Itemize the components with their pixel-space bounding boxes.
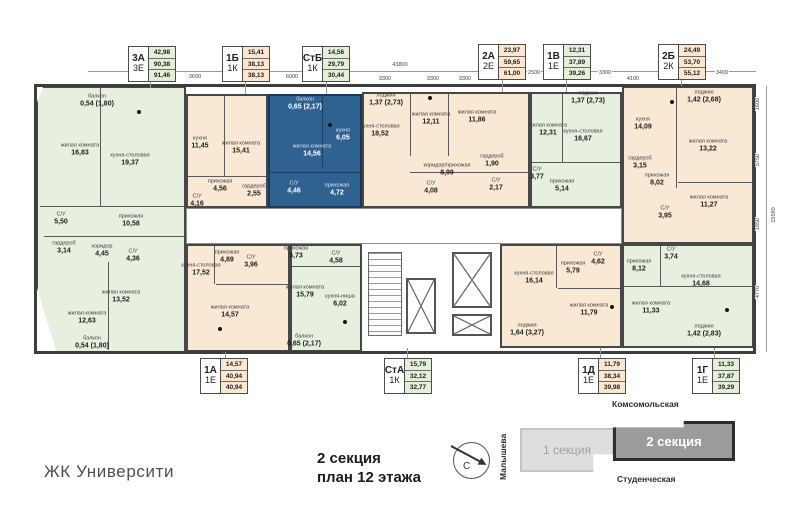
- dimension-segment: 3300: [426, 76, 440, 82]
- room-label: прихожая5,79: [561, 261, 586, 276]
- room-label: балкон0,65 (2,17): [288, 97, 322, 112]
- legend-leader: [407, 348, 408, 358]
- dimension-segment: 3300: [598, 70, 612, 76]
- minimap-section-2[interactable]: 2 секция: [613, 421, 735, 461]
- street-komsomolskaya: Комсомольская: [612, 399, 679, 409]
- legend-3a[interactable]: 3А3Е 42,9890,3891,46: [128, 46, 176, 82]
- plan-caption-floor: план 12 этажа: [317, 469, 421, 488]
- floor-plan-page: балкон0,54 (1,80) жилая комната16,83 кух…: [0, 0, 800, 520]
- room-label: жилая комната16,83: [61, 143, 99, 158]
- room-label: лоджия1,64 (3,27): [510, 323, 544, 338]
- room-label: С/У4,58: [329, 251, 343, 266]
- room-label: гардероб2,55: [242, 184, 265, 199]
- elevator-shaft: [452, 252, 492, 308]
- room-label: С/У5,50: [54, 212, 68, 227]
- apartment-2a[interactable]: [362, 92, 530, 208]
- legend-leader: [681, 80, 682, 86]
- interior-wall: [660, 246, 661, 286]
- legend-leader: [566, 80, 567, 92]
- legend-stb[interactable]: СтБ1К 14,5629,7930,44: [302, 46, 350, 82]
- legend-leader: [502, 80, 503, 92]
- room-label: жилая комната14,56: [293, 144, 331, 159]
- interior-wall: [188, 176, 266, 177]
- interior-wall: [558, 288, 620, 289]
- room-label: лоджия1,42 (2,68): [687, 90, 721, 105]
- legend-2a[interactable]: 2А2Е 23,9759,6561,00: [478, 44, 526, 80]
- room-label: кухня6,05: [336, 128, 350, 143]
- entry-dot: [428, 96, 432, 100]
- street-studencheskaya: Студенческая: [617, 474, 676, 484]
- room-label: кухня-столовая16,14: [514, 271, 553, 286]
- interior-wall: [532, 162, 620, 163]
- interior-wall: [292, 266, 360, 267]
- dimension-segment: 4770: [755, 285, 761, 299]
- room-label: жилая комната11,27: [690, 195, 728, 210]
- room-label: С/У4,62: [591, 252, 605, 267]
- room-label: С/У3,74: [664, 247, 678, 262]
- legend-leader: [326, 82, 327, 94]
- elevator-shaft: [406, 278, 436, 334]
- room-label: жилая комната11,33: [632, 301, 670, 316]
- room-label: кухня11,45: [191, 136, 208, 151]
- dimension-segment: 5750: [755, 153, 761, 167]
- complex-logo: ЖК Университи: [44, 462, 174, 482]
- entry-dot: [218, 327, 222, 331]
- room-label: жилая комната13,52: [102, 290, 140, 305]
- room-label: жилая комната14,57: [211, 305, 249, 320]
- room-label: кухня-столовая14,68: [681, 274, 720, 289]
- room-label: С/У2,17: [489, 178, 503, 193]
- room-label: С/У4,08: [424, 181, 438, 196]
- interior-wall: [40, 206, 184, 207]
- room-label: прихожая10,58: [119, 214, 144, 229]
- interior-wall: [676, 88, 677, 188]
- legend-sta[interactable]: СтА1К 15,7932,1232,77: [384, 358, 432, 394]
- room-label: лоджия1,37 (2,73): [571, 91, 605, 106]
- dimension-segment: 3300: [458, 76, 472, 82]
- room-label: С/У3,95: [658, 206, 672, 221]
- interior-wall: [270, 172, 360, 173]
- dimension-segment: 3400: [715, 70, 729, 76]
- entry-dot: [725, 308, 729, 312]
- dimension-segment: 3600: [188, 74, 202, 80]
- interior-wall: [224, 96, 225, 176]
- corridor: [186, 208, 622, 244]
- room-label: С/У4,46: [287, 181, 301, 196]
- legend-leader: [245, 82, 246, 94]
- entry-dot: [137, 110, 141, 114]
- dimension-segment: 4100: [626, 76, 640, 82]
- legend-1g[interactable]: 1Г1Е 11,3337,8739,29: [692, 358, 740, 394]
- room-label: жилая комната15,79: [286, 285, 324, 300]
- room-label: гардероб3,14: [52, 241, 75, 256]
- legend-leader: [714, 348, 715, 358]
- apartment-1v[interactable]: [530, 92, 622, 208]
- legend-1v[interactable]: 1В1Е 12,3137,8939,26: [543, 44, 591, 80]
- room-label: кухня14,09: [634, 117, 652, 132]
- plan-caption: 2 секция план 12 этажа: [317, 450, 421, 488]
- room-label: лоджия1,37 (2,73): [369, 93, 403, 108]
- room-label: жилая комната12,63: [68, 311, 106, 326]
- dimension-line-top: [88, 71, 756, 72]
- room-label: коридор4,45: [92, 244, 113, 259]
- room-label: кухня-столовая18,52: [360, 124, 399, 139]
- interior-wall: [44, 236, 184, 237]
- entry-dot: [610, 305, 614, 309]
- legend-1a[interactable]: 1А1Е 14,5740,9440,94: [200, 358, 248, 394]
- interior-wall: [678, 182, 752, 183]
- room-label: прихожая4,56: [208, 179, 233, 194]
- interior-wall: [556, 246, 557, 288]
- dimension-line-right: [766, 86, 767, 352]
- room-label: С/У3,77: [530, 167, 544, 182]
- interior-wall: [216, 284, 288, 285]
- entry-dot: [328, 123, 332, 127]
- room-label: балкон0,54 (1,80): [75, 336, 109, 351]
- room-label: прихожая8,12: [627, 259, 652, 274]
- room-label: жилая комната12,31: [529, 123, 567, 138]
- dimension-segment: 2500: [527, 70, 541, 76]
- room-label: кухня-столовая17,52: [181, 263, 220, 278]
- room-label: жилая комната11,79: [570, 303, 608, 318]
- dimension-segment: 3300: [378, 76, 392, 82]
- entry-dot: [670, 100, 674, 104]
- room-label: жилая комната15,41: [222, 141, 260, 156]
- room-label: прихожая8,02: [645, 173, 670, 188]
- room-label: коридор/прихожая8,99: [423, 163, 470, 178]
- room-label: С/У3,96: [244, 255, 258, 270]
- legend-leader: [150, 82, 151, 88]
- dimension-total-top: 43800: [391, 62, 408, 68]
- legend-leader: [600, 348, 601, 358]
- room-label: лоджия1,42 (2,83): [687, 324, 721, 339]
- room-label: балкон0,65 (2,17): [287, 334, 321, 349]
- room-label: жилая комната11,86: [458, 110, 496, 125]
- room-label: прихожая5,73: [284, 246, 309, 261]
- room-label: кухня-столовая16,67: [563, 129, 602, 144]
- room-label: гардероб1,90: [480, 154, 503, 169]
- compass-north-label: С: [463, 461, 470, 472]
- room-label: С/У4,16: [190, 194, 204, 209]
- dimension-segment: 1850: [755, 217, 761, 231]
- room-label: жилая комната12,11: [412, 112, 450, 127]
- room-label: жилая комната13,22: [689, 139, 727, 154]
- street-malysheva: Малышева: [498, 428, 508, 480]
- legend-1d[interactable]: 1Д1Е 11,7938,3439,98: [578, 358, 626, 394]
- room-label: балкон0,54 (1,80): [80, 94, 114, 109]
- legend-2b[interactable]: 2Б2К 24,4953,7055,12: [658, 44, 706, 80]
- dimension-segment: 1600: [755, 97, 761, 111]
- room-label: кухня-столовая19,37: [110, 153, 149, 168]
- room-label: гардероб3,15: [628, 156, 651, 171]
- dimension-segment: 6000: [285, 74, 299, 80]
- staircase: [368, 252, 402, 336]
- minimap-section-1[interactable]: 1 секция: [520, 428, 614, 472]
- elevator-shaft: [452, 314, 492, 336]
- room-label: С/У4,36: [126, 249, 140, 264]
- room-label: прихожая5,14: [550, 179, 575, 194]
- room-label: прихожая4,72: [325, 183, 350, 198]
- plan-caption-section: 2 секция: [317, 450, 421, 469]
- dimension-total-right: 15590: [771, 206, 777, 223]
- legend-1b[interactable]: 1Б1К 15,4138,1338,13: [222, 46, 270, 82]
- entry-dot: [343, 320, 347, 324]
- room-label: кухня-ниша6,02: [325, 294, 354, 309]
